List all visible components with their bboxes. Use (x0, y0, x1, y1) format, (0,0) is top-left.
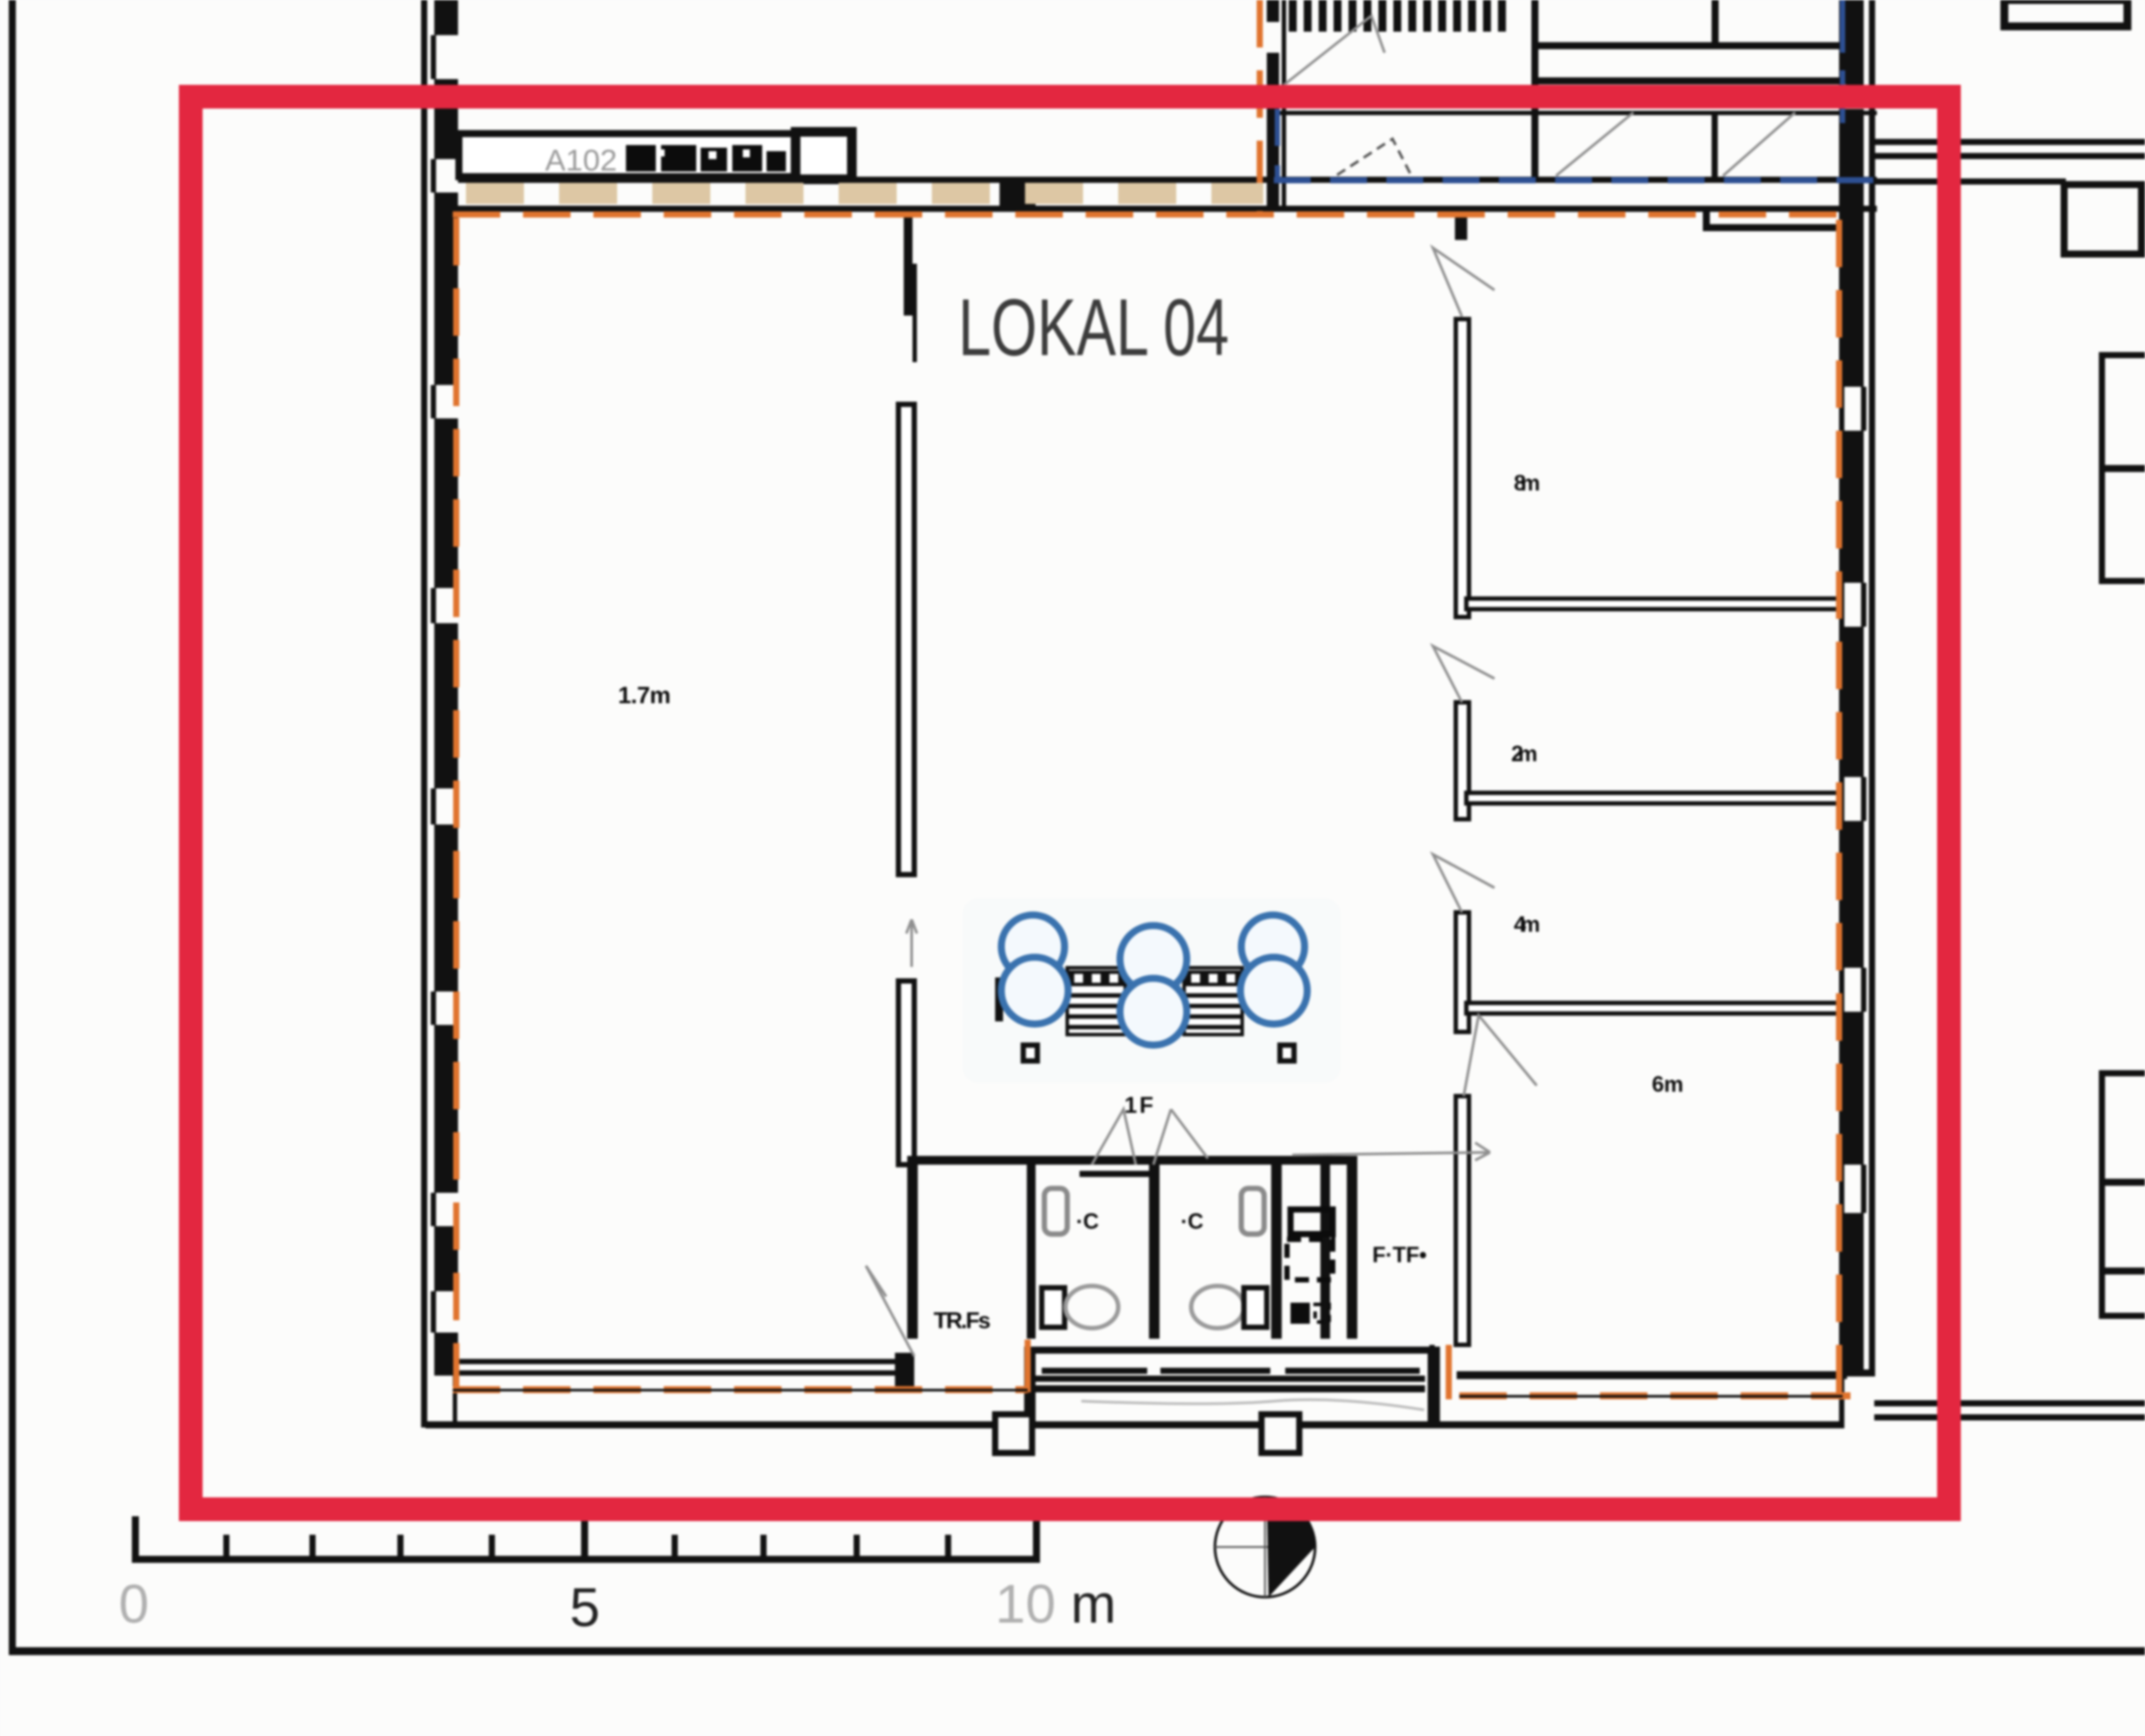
svg-text:5: 5 (570, 1578, 600, 1638)
svg-text:LOKAL 04: LOKAL 04 (958, 283, 1229, 373)
svg-text:8m: 8m (1514, 471, 1540, 496)
svg-text:·C: ·C (1181, 1209, 1203, 1234)
svg-text:4m: 4m (1514, 912, 1540, 937)
svg-text:·C: ·C (1076, 1209, 1099, 1234)
svg-text:6m: 6m (1652, 1072, 1683, 1097)
svg-text:1F: 1F (1124, 1092, 1153, 1118)
svg-text:0: 0 (119, 1574, 149, 1635)
svg-text:1.7m: 1.7m (618, 682, 671, 708)
svg-text:10: 10 (995, 1574, 1056, 1635)
svg-text:A102: A102 (545, 144, 617, 178)
svg-text:m: m (1071, 1574, 1116, 1635)
svg-text:F·TF•: F·TF• (1372, 1243, 1427, 1267)
svg-text:TR.Fs: TR.Fs (934, 1307, 991, 1333)
svg-text:2m: 2m (1511, 742, 1538, 766)
